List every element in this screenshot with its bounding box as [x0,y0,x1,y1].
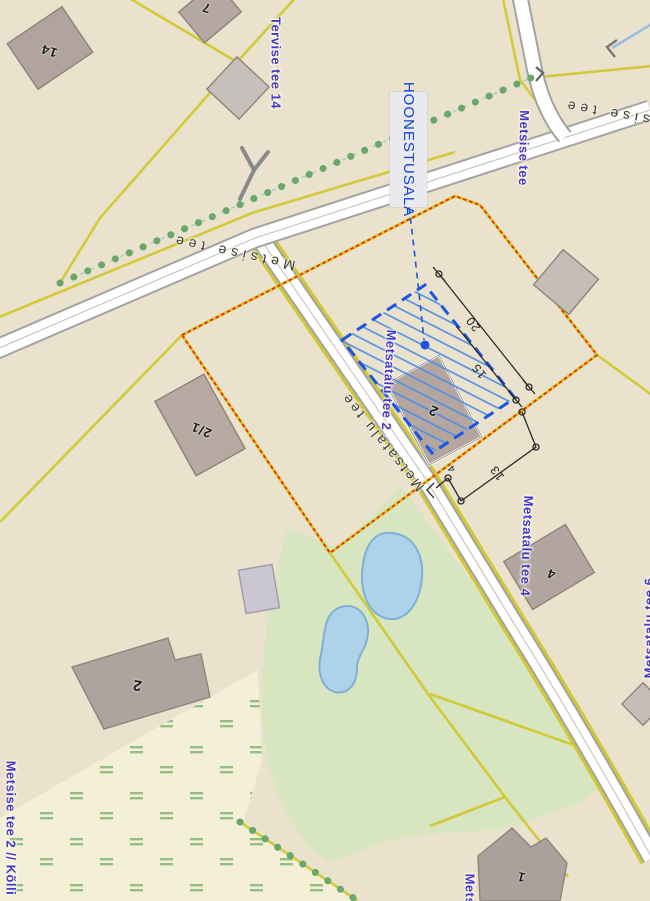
pond-upper [362,533,422,619]
map-canvas[interactable]: Metsise tee Metsise tee Metsatalu tee Te… [0,0,650,901]
map-layers [0,0,650,901]
hoonestusala-label-box: HOONESTUSALA [390,92,427,207]
hoonestusala-label: HOONESTUSALA [400,82,417,217]
building-small-light [238,564,279,613]
leader-dot [421,341,430,350]
